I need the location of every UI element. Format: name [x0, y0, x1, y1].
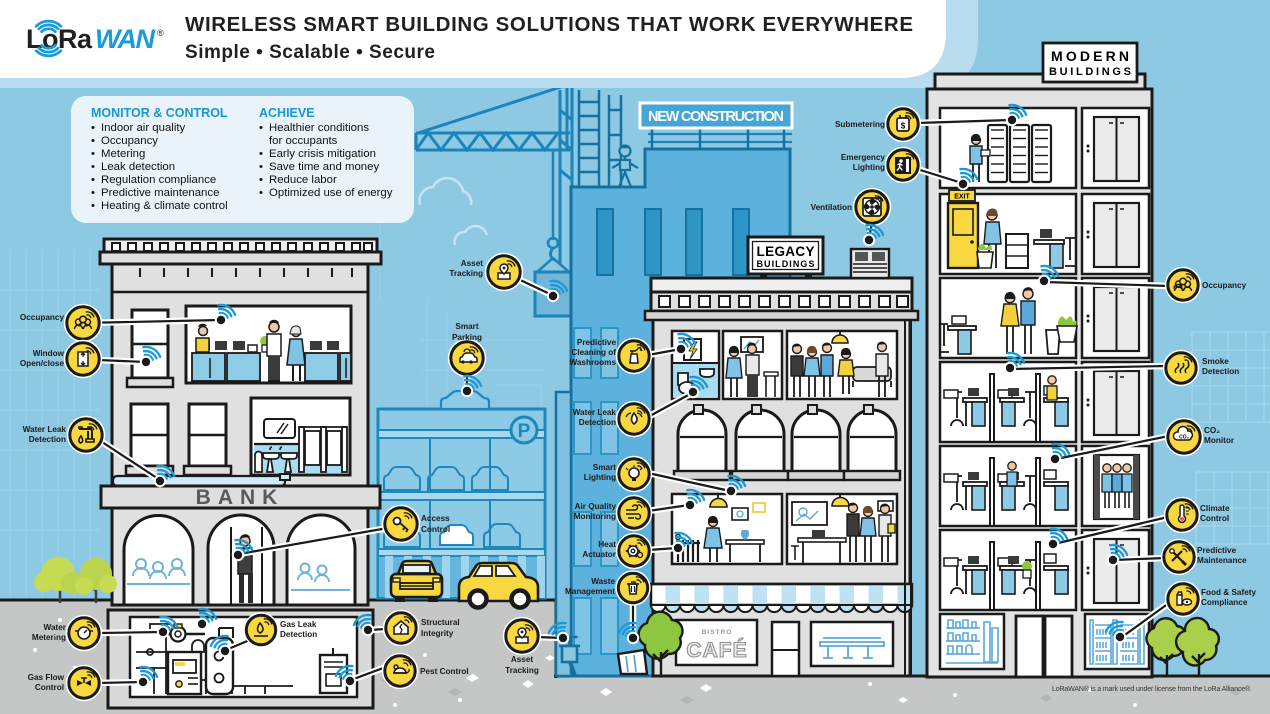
- svg-text:Submetering: Submetering: [835, 120, 885, 129]
- svg-text:Heating & climate control: Heating & climate control: [101, 200, 228, 212]
- svg-text:CAFÉ: CAFÉ: [686, 639, 747, 662]
- svg-text:Tracking: Tracking: [449, 269, 483, 278]
- svg-text:Detection: Detection: [1202, 367, 1239, 376]
- svg-text:CO₂: CO₂: [1179, 435, 1189, 441]
- svg-text:MONITOR & CONTROL: MONITOR & CONTROL: [91, 106, 228, 120]
- svg-text:•: •: [91, 148, 95, 160]
- svg-text:BUILDINGS: BUILDINGS: [757, 259, 815, 269]
- svg-text:WAN: WAN: [95, 24, 156, 54]
- svg-text:Metering: Metering: [101, 148, 145, 160]
- svg-text:•: •: [259, 187, 263, 199]
- svg-text:NEW CONSTRUCTION: NEW CONSTRUCTION: [648, 109, 784, 125]
- svg-text:Monitor: Monitor: [1204, 436, 1235, 445]
- svg-text:LoRaWAN® is a mark used under: LoRaWAN® is a mark used under license fr…: [1052, 685, 1252, 693]
- svg-text:Window: Window: [33, 349, 65, 358]
- svg-text:Gas Flow: Gas Flow: [28, 673, 65, 682]
- svg-text:Open/close: Open/close: [20, 359, 65, 368]
- svg-text:•: •: [259, 122, 263, 134]
- svg-text:•: •: [259, 161, 263, 173]
- svg-text:•: •: [91, 174, 95, 186]
- svg-text:BANK: BANK: [196, 486, 285, 509]
- svg-text:Parking: Parking: [452, 333, 482, 342]
- svg-text:Food & Safety: Food & Safety: [1201, 588, 1256, 597]
- svg-text:BISTRO: BISTRO: [702, 629, 733, 636]
- svg-text:Reduce labor: Reduce labor: [269, 174, 337, 186]
- svg-text:•: •: [259, 174, 263, 186]
- svg-text:Early crisis mitigation: Early crisis mitigation: [269, 148, 376, 160]
- svg-text:Climate: Climate: [1200, 504, 1230, 513]
- svg-text:•: •: [91, 161, 95, 173]
- svg-text:Water: Water: [44, 623, 67, 632]
- svg-text:Occupancy: Occupancy: [101, 135, 158, 147]
- svg-text:Detection: Detection: [579, 418, 616, 427]
- svg-text:Lighting: Lighting: [853, 163, 885, 172]
- svg-text:Indoor air quality: Indoor air quality: [101, 122, 186, 134]
- svg-text:•: •: [91, 135, 95, 147]
- svg-text:Smoke: Smoke: [1202, 357, 1229, 366]
- svg-text:Water Leak: Water Leak: [573, 408, 617, 417]
- svg-text:Asset: Asset: [461, 259, 484, 268]
- svg-text:•: •: [259, 148, 263, 160]
- svg-text:Predictive: Predictive: [577, 338, 617, 347]
- svg-text:•: •: [91, 200, 95, 212]
- svg-text:Smart: Smart: [593, 463, 616, 472]
- svg-text:Control: Control: [1200, 514, 1229, 523]
- svg-text:Compliance: Compliance: [1201, 598, 1248, 607]
- svg-text:Maintenance: Maintenance: [1197, 556, 1247, 565]
- svg-text:Asset: Asset: [511, 655, 534, 664]
- svg-text:Control: Control: [421, 525, 450, 534]
- svg-text:Waste: Waste: [591, 577, 615, 586]
- svg-text:Occupancy: Occupancy: [1202, 281, 1247, 290]
- svg-text:Detection: Detection: [280, 630, 317, 639]
- svg-text:Metering: Metering: [32, 633, 66, 642]
- svg-text:Management: Management: [565, 587, 615, 596]
- svg-text:Actuator: Actuator: [582, 550, 616, 559]
- svg-text:Monitoring: Monitoring: [574, 512, 616, 521]
- svg-text:Access: Access: [421, 514, 450, 523]
- svg-text:Detection: Detection: [29, 435, 66, 444]
- svg-text:EXIT: EXIT: [954, 194, 970, 201]
- svg-text:LEGACY: LEGACY: [757, 244, 815, 259]
- svg-text:P: P: [518, 421, 531, 442]
- svg-text:Predictive: Predictive: [1197, 546, 1237, 555]
- svg-text:Integrity: Integrity: [421, 629, 454, 638]
- svg-text:Leak detection: Leak detection: [101, 161, 175, 173]
- svg-text:Air Quality: Air Quality: [575, 502, 617, 511]
- svg-text:ACHIEVE: ACHIEVE: [259, 106, 315, 120]
- svg-text:Washrooms: Washrooms: [569, 358, 616, 367]
- svg-text:Structural: Structural: [421, 618, 460, 627]
- svg-text:Heat: Heat: [598, 540, 616, 549]
- svg-text:Tracking: Tracking: [505, 666, 539, 675]
- svg-text:Control: Control: [35, 683, 64, 692]
- svg-text:Emergency: Emergency: [841, 153, 886, 162]
- svg-text:Optimized use of energy: Optimized use of energy: [269, 187, 393, 199]
- svg-text:Occupancy: Occupancy: [20, 313, 65, 322]
- svg-text:•: •: [91, 122, 95, 134]
- svg-text:WIRELESS SMART BUILDING SOLUTI: WIRELESS SMART BUILDING SOLUTIONS THAT W…: [185, 13, 913, 36]
- svg-text:Lighting: Lighting: [584, 473, 616, 482]
- svg-text:Ventilation: Ventilation: [811, 203, 852, 212]
- svg-text:Smart: Smart: [455, 322, 478, 331]
- svg-text:$: $: [901, 122, 906, 131]
- svg-text:Predictive maintenance: Predictive maintenance: [101, 187, 219, 199]
- svg-text:Cleaning of: Cleaning of: [571, 348, 616, 357]
- svg-text:•: •: [91, 187, 95, 199]
- svg-text:BUILDINGS: BUILDINGS: [1049, 66, 1131, 78]
- svg-text:for occupants: for occupants: [269, 135, 338, 147]
- svg-text:Simple • Scalable • Secure: Simple • Scalable • Secure: [185, 42, 435, 63]
- svg-text:CO₂: CO₂: [1204, 426, 1220, 435]
- svg-text:Pest Control: Pest Control: [420, 667, 469, 676]
- svg-text:Gas Leak: Gas Leak: [280, 620, 317, 629]
- svg-text:Save time and money: Save time and money: [269, 161, 379, 173]
- svg-text:Water Leak: Water Leak: [23, 425, 67, 434]
- svg-text:Healthier conditions: Healthier conditions: [269, 122, 369, 134]
- svg-text:®: ®: [157, 28, 164, 38]
- svg-text:Regulation compliance: Regulation compliance: [101, 174, 216, 186]
